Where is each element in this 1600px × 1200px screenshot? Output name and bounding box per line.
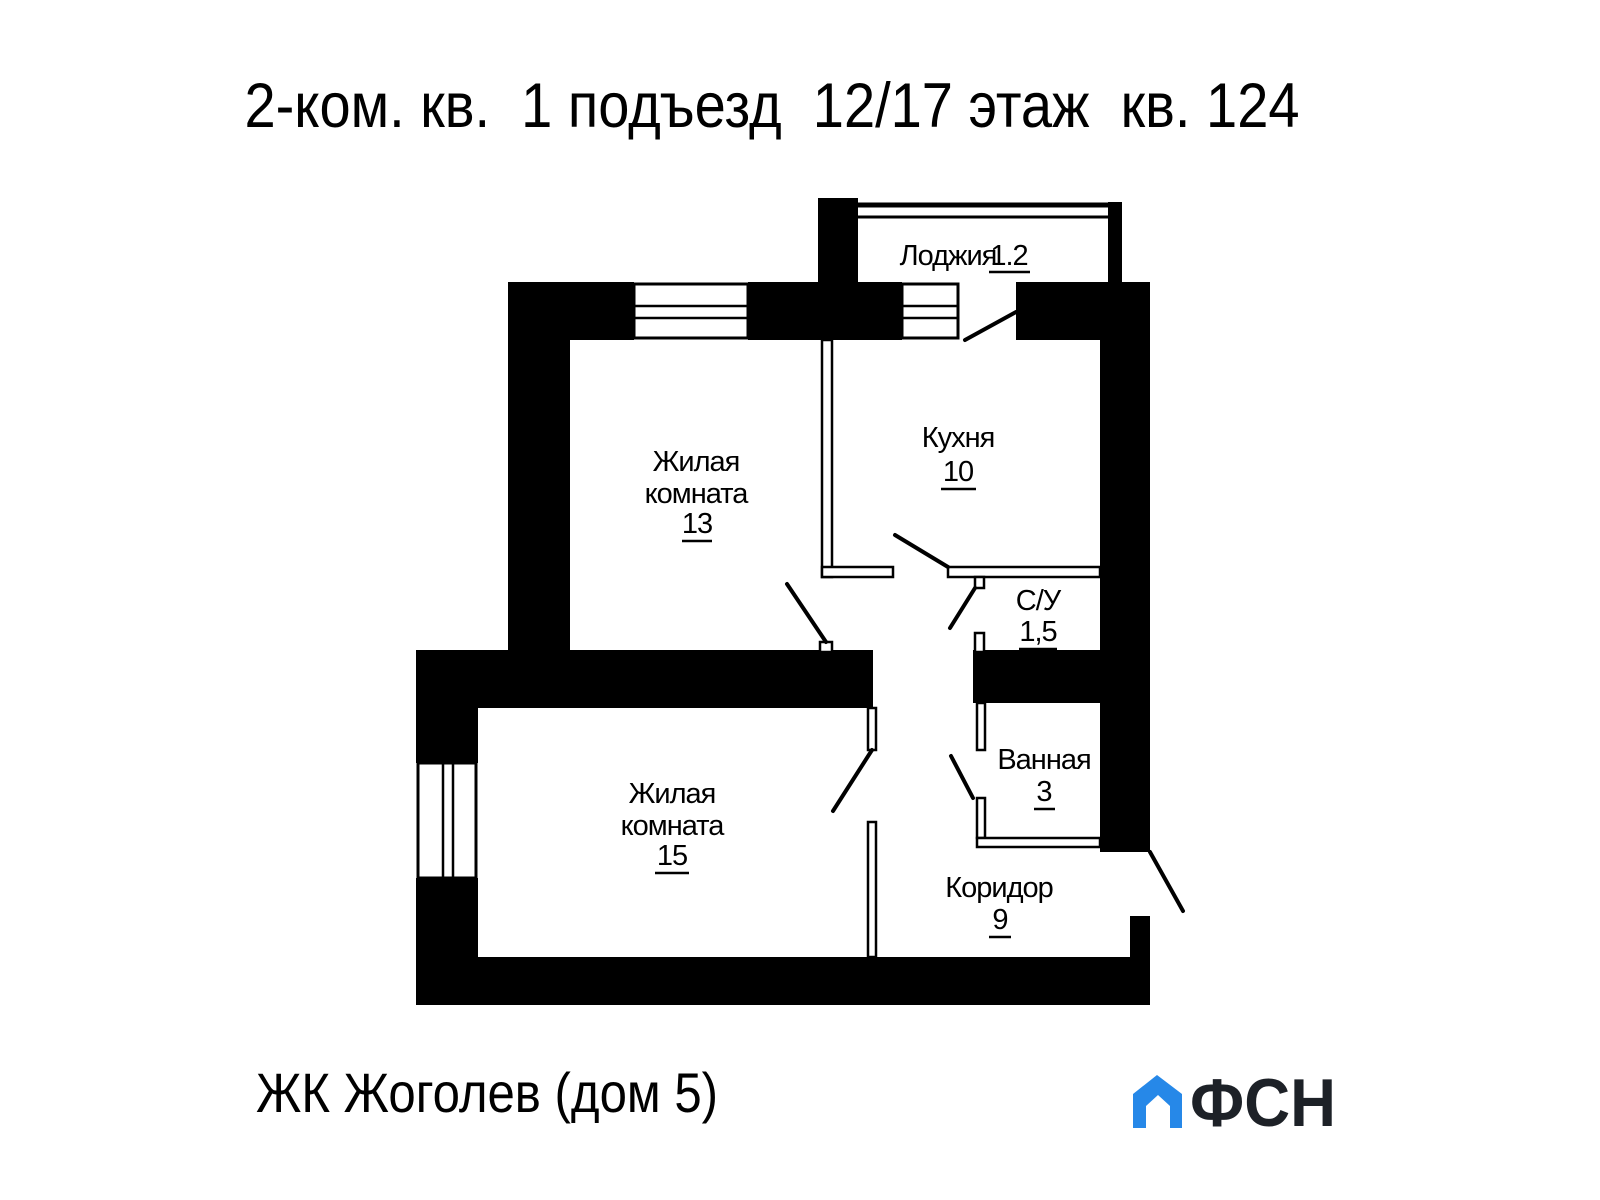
door-swing-room13 — [787, 584, 826, 642]
room-name-room15-line1: Жилая — [629, 778, 716, 810]
room-labels: Лоджия 1.2 Кухня 10 Жилая комната 13 С/У… — [621, 240, 1091, 937]
page-title: 2-ком. кв. 1 подъезд 12/17 этаж кв. 124 — [245, 71, 1300, 141]
room-label-room15: Жилая комната 15 — [621, 778, 726, 873]
wall-top-right-block — [1016, 282, 1150, 340]
room-label-room13: Жилая комната 13 — [645, 446, 750, 541]
wall-left-upper — [508, 282, 570, 655]
room-area-room13: 13 — [682, 508, 712, 540]
wall-right-exterior — [1100, 335, 1150, 852]
wall-loggia-left-pier — [818, 198, 858, 286]
room-name-loggia: Лоджия — [900, 240, 997, 272]
partition-kitchen-bottom — [822, 567, 893, 577]
floor-plan-canvas: 2-ком. кв. 1 подъезд 12/17 этаж кв. 124 — [0, 0, 1600, 1200]
window-room13 — [634, 284, 748, 338]
partition-room15-right-lower — [868, 822, 876, 957]
wall-middle-band-left — [416, 650, 873, 708]
partition-bathroom-left-upper — [977, 703, 985, 750]
door-swing-entry — [1150, 852, 1183, 911]
room-name-bathroom: Ванная — [997, 744, 1090, 776]
footer: ЖК Жоголев (дом 5) ФСН — [256, 1061, 1336, 1141]
logo-text: ФСН — [1190, 1065, 1336, 1141]
door-swing-room15 — [833, 750, 872, 811]
room-name-corridor: Коридор — [945, 872, 1053, 904]
room-area-kitchen: 10 — [943, 456, 973, 488]
room-name-room13-line2: комната — [645, 478, 750, 510]
wall-bottom-right-stub — [1130, 916, 1150, 1005]
partition-wc-door-stub — [975, 577, 984, 588]
room-label-wc: С/У 1,5 — [1016, 585, 1062, 649]
room-name-wc: С/У — [1016, 585, 1062, 617]
window-room15-frame — [418, 763, 476, 878]
door-swing-bathroom — [951, 756, 973, 798]
window-kitchen-frame — [902, 284, 958, 338]
room-label-corridor: Коридор 9 — [945, 872, 1053, 937]
door-swing-wc — [950, 588, 975, 628]
room-label-loggia: Лоджия 1.2 — [900, 240, 1030, 272]
room-name-kitchen: Кухня — [922, 422, 995, 454]
door-swing-kitchen — [895, 535, 948, 567]
loggia-glazing-rail — [858, 205, 1108, 217]
wall-loggia-right — [1108, 202, 1122, 286]
room-area-wc: 1,5 — [1019, 616, 1056, 648]
door-swing-loggia — [965, 312, 1016, 340]
room-name-room15-line2: комната — [621, 810, 726, 842]
room-area-loggia: 1.2 — [990, 240, 1027, 272]
wall-left-lower-upper-seg — [416, 650, 478, 763]
room-area-room15: 15 — [657, 840, 687, 872]
partition-bathroom-bottom — [977, 838, 1100, 847]
logo-house-icon — [1133, 1075, 1182, 1128]
partition-room15-right-upper — [868, 708, 876, 750]
window-room13-frame — [634, 284, 748, 338]
wall-middle-band-right — [973, 650, 1150, 703]
partition-bathroom-left-lower — [977, 798, 985, 838]
room-label-bathroom: Ванная 3 — [997, 744, 1090, 809]
wall-top-middle-segment — [748, 282, 902, 340]
project-name: ЖК Жоголев (дом 5) — [256, 1061, 718, 1124]
room-area-bathroom: 3 — [1036, 776, 1051, 808]
room-label-kitchen: Кухня 10 — [922, 422, 995, 489]
partition-wc-left-lower — [975, 633, 984, 652]
partition-wc-top — [948, 567, 1100, 577]
room-area-corridor: 9 — [992, 904, 1007, 936]
partition-kitchen-left — [822, 340, 832, 577]
wall-bottom — [416, 957, 1130, 1005]
developer-logo: ФСН — [1133, 1065, 1336, 1141]
room-name-room13-line1: Жилая — [653, 446, 740, 478]
window-room15 — [418, 763, 476, 878]
window-kitchen — [902, 284, 958, 338]
floor-plan-page: 2-ком. кв. 1 подъезд 12/17 этаж кв. 124 — [0, 0, 1600, 1200]
